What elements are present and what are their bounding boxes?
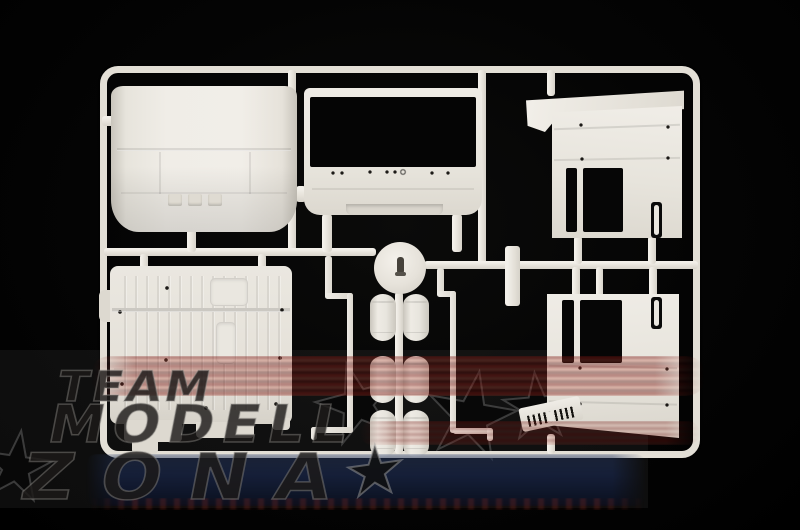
panel-tab: [168, 194, 182, 206]
slot-with-pillar: [651, 297, 662, 329]
panel-tab: [208, 194, 222, 206]
panel-recess: [210, 278, 248, 306]
air-tank-part: [403, 410, 429, 457]
panel-crease: [554, 124, 680, 130]
window-opening: [562, 300, 574, 363]
panel-crease: [249, 152, 251, 194]
gate-stub: [452, 214, 462, 252]
watermark-line-3: ZONA: [16, 446, 364, 510]
panel-notch: [346, 204, 443, 215]
product-photo-model-sprue: ★ ★ ★ ★: [0, 0, 800, 530]
panel-ribs: [116, 276, 286, 308]
panel-crease: [549, 365, 677, 370]
watermark-star-icon: ★: [344, 434, 406, 510]
gate-stub: [648, 236, 656, 264]
slot-with-pillar: [651, 202, 662, 238]
pipe-rod-part: [487, 428, 493, 441]
air-tank-part: [370, 356, 396, 403]
gate-tab: [505, 246, 520, 306]
panel-crease: [159, 152, 161, 194]
panel-crease: [121, 192, 287, 194]
gate-stub: [649, 267, 657, 297]
disc-mold-mark: [395, 272, 406, 276]
pillar-strip: [654, 300, 659, 326]
windshield-opening: [310, 97, 476, 167]
wheel-cover-disc-part: [374, 242, 426, 294]
gate-stub: [547, 434, 555, 454]
sprue-runner-horizontal-right: [424, 261, 698, 269]
window-opening: [580, 300, 622, 363]
panel-crease: [117, 148, 291, 151]
pipe-rod-part: [453, 428, 491, 434]
pipe-rod-part: [325, 256, 332, 298]
pipe-rod-part: [450, 291, 456, 433]
panel-tab: [188, 194, 202, 206]
window-opening: [566, 168, 577, 232]
roof-panel-part: [111, 86, 297, 232]
air-tank-part: [403, 356, 429, 403]
pillar-strip: [654, 205, 659, 235]
air-tank-part: [370, 294, 396, 341]
gate-stub: [574, 236, 582, 264]
window-opening: [583, 168, 623, 232]
cab-front-panel-part: [304, 88, 482, 215]
gate-stub: [322, 214, 332, 252]
gate-stub: [596, 267, 603, 297]
gate-stub: [547, 70, 555, 96]
panel-crease: [554, 157, 680, 161]
side-panel-upper-right-part: [552, 106, 682, 238]
panel-recess: [216, 322, 236, 364]
air-tank-part: [403, 294, 429, 341]
gate-stub: [572, 267, 580, 297]
